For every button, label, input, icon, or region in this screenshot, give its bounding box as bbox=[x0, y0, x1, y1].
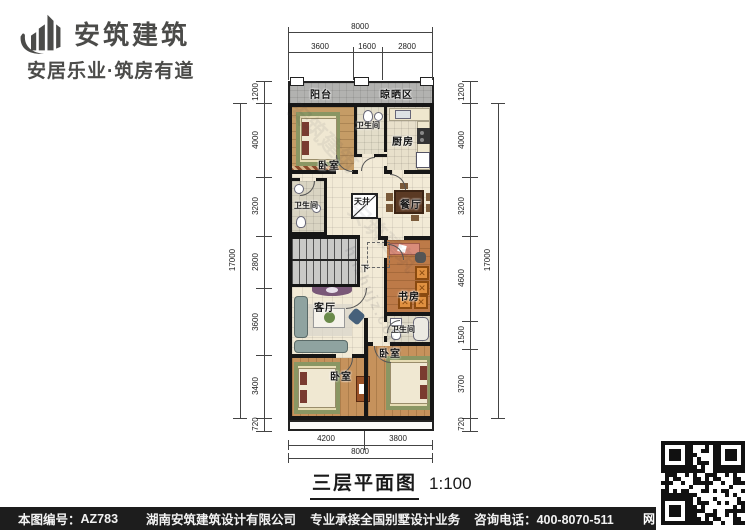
tick bbox=[288, 440, 289, 450]
qr-code bbox=[661, 441, 745, 525]
sofa bbox=[294, 296, 308, 338]
room-label-bath-low: 卫生间 bbox=[391, 324, 415, 335]
bathtub bbox=[413, 317, 429, 341]
room-label-dining: 餐厅 bbox=[400, 196, 422, 211]
room-label-bedroom-top: 卧室 bbox=[318, 157, 340, 172]
balcony-post bbox=[354, 77, 369, 86]
bed-pillow bbox=[300, 390, 307, 403]
stove bbox=[417, 128, 430, 144]
tick bbox=[256, 177, 272, 178]
dim-bottom-total: 8000 bbox=[336, 447, 384, 456]
wall bbox=[384, 258, 387, 312]
room-label-bedroom-left: 卧室 bbox=[330, 368, 352, 383]
drawing-number: AZ783 bbox=[81, 512, 119, 526]
phone-text: 咨询电话：400-8070-511 bbox=[474, 509, 614, 528]
wall bbox=[384, 316, 387, 322]
room-label-living: 客厅 bbox=[314, 299, 336, 314]
wall bbox=[404, 236, 434, 240]
dining-chair bbox=[386, 193, 393, 201]
wall bbox=[384, 312, 434, 316]
bed-pillow bbox=[420, 366, 427, 380]
dim-right-seg: 3700 bbox=[457, 364, 467, 404]
drawing-number-label: 本图编号： bbox=[18, 509, 81, 528]
room-label-bath-mid: 卫生间 bbox=[294, 200, 318, 211]
wall bbox=[357, 238, 360, 287]
dim-top-seg: 3600 bbox=[296, 42, 344, 51]
company-name: 湖南安筑建筑设计有限公司 bbox=[146, 509, 296, 528]
wall bbox=[352, 354, 364, 358]
dim-right-seg: 4000 bbox=[457, 120, 467, 160]
wall bbox=[288, 178, 300, 181]
tick bbox=[256, 355, 272, 356]
stairs-down-label: 下 bbox=[361, 263, 369, 274]
room-label-kitchen: 厨房 bbox=[392, 133, 414, 148]
web-label: 网 bbox=[643, 510, 655, 527]
wall bbox=[354, 154, 362, 157]
tick bbox=[491, 103, 505, 104]
wall bbox=[288, 103, 292, 420]
bed-pillow bbox=[302, 141, 309, 155]
tick bbox=[462, 177, 478, 178]
storage-crate: ✕ bbox=[415, 266, 429, 280]
dining-chair bbox=[386, 204, 393, 212]
dim-right-seg: 720 bbox=[457, 404, 467, 444]
wall bbox=[404, 170, 434, 174]
wall bbox=[384, 336, 387, 342]
bed-pillow bbox=[420, 385, 427, 399]
stove-burner bbox=[420, 131, 424, 135]
sofa bbox=[294, 340, 348, 353]
tick bbox=[288, 453, 289, 463]
console-decor bbox=[326, 287, 338, 293]
balcony-post bbox=[290, 77, 304, 86]
tick bbox=[491, 418, 505, 419]
bed-pillow bbox=[302, 122, 309, 136]
dim-top-total: 8000 bbox=[330, 22, 390, 31]
tick bbox=[432, 440, 433, 450]
plan-title: 三层平面图 bbox=[310, 468, 419, 500]
wall bbox=[364, 318, 368, 420]
service-text: 专业承接全国别墅设计业务 bbox=[310, 509, 460, 528]
room-label-study: 书房 bbox=[398, 288, 420, 303]
drawing-title-block: 三层平面图 1:100 bbox=[310, 468, 472, 500]
wall bbox=[368, 342, 373, 346]
floor-plan: 阳台 晾晒区 下 天井 ✕ ✕ ✕ bbox=[0, 0, 750, 530]
wall bbox=[384, 240, 387, 246]
room-label-bath-top: 卫生间 bbox=[356, 120, 380, 131]
wall bbox=[324, 178, 327, 235]
tick bbox=[432, 453, 433, 463]
room-label-lightwell: 天井 bbox=[354, 196, 370, 207]
dim-right-seg: 1500 bbox=[457, 315, 467, 355]
dim-left-seg: 4000 bbox=[251, 120, 261, 160]
bed-pillow bbox=[300, 372, 307, 385]
tick bbox=[256, 288, 272, 289]
wall bbox=[384, 103, 387, 152]
desk-chair bbox=[415, 252, 426, 263]
tick bbox=[233, 418, 247, 419]
wall bbox=[288, 235, 360, 239]
wall bbox=[374, 154, 387, 157]
stove-burner bbox=[420, 138, 424, 142]
plan-scale: 1:100 bbox=[429, 474, 472, 494]
dim-right-seg: 1200 bbox=[457, 72, 467, 112]
kitchen-sink bbox=[395, 110, 411, 119]
wall bbox=[288, 354, 336, 358]
tick bbox=[256, 236, 272, 237]
dim-left-seg: 720 bbox=[251, 404, 261, 444]
room-label-balcony: 阳台 bbox=[310, 86, 332, 101]
staircase bbox=[292, 238, 357, 284]
dim-left-total: 17000 bbox=[228, 230, 238, 290]
tick bbox=[432, 27, 433, 37]
dim-left-seg: 3600 bbox=[251, 302, 261, 342]
room-label-drying-area: 晾晒区 bbox=[380, 86, 413, 101]
stair-rail bbox=[292, 259, 357, 261]
footer-bar: 本图编号： AZ783 湖南安筑建筑设计有限公司 专业承接全国别墅设计业务 咨询… bbox=[0, 507, 750, 530]
dim-right-total: 17000 bbox=[483, 230, 493, 290]
dim-bottom-seg: 4200 bbox=[302, 434, 350, 443]
dim-left-seg: 3400 bbox=[251, 366, 261, 406]
dim-left-seg: 3200 bbox=[251, 186, 261, 226]
tick bbox=[462, 236, 478, 237]
wall bbox=[288, 103, 434, 107]
tick bbox=[233, 103, 247, 104]
dim-left-seg: 1200 bbox=[251, 72, 261, 112]
dining-chair bbox=[411, 215, 419, 221]
dim-bottom-seg: 3800 bbox=[374, 434, 422, 443]
dim-right-seg: 3200 bbox=[457, 186, 467, 226]
dim-right-seg: 4600 bbox=[457, 258, 467, 298]
wall bbox=[430, 103, 434, 420]
toilet bbox=[296, 216, 306, 228]
fridge bbox=[416, 152, 430, 168]
dim-left-seg: 2800 bbox=[251, 242, 261, 282]
wall bbox=[288, 284, 360, 287]
room-label-bedroom-right: 卧室 bbox=[379, 345, 401, 360]
dim-top-seg: 2800 bbox=[383, 42, 431, 51]
lower-roof-strip bbox=[288, 420, 434, 431]
tick bbox=[288, 27, 289, 37]
